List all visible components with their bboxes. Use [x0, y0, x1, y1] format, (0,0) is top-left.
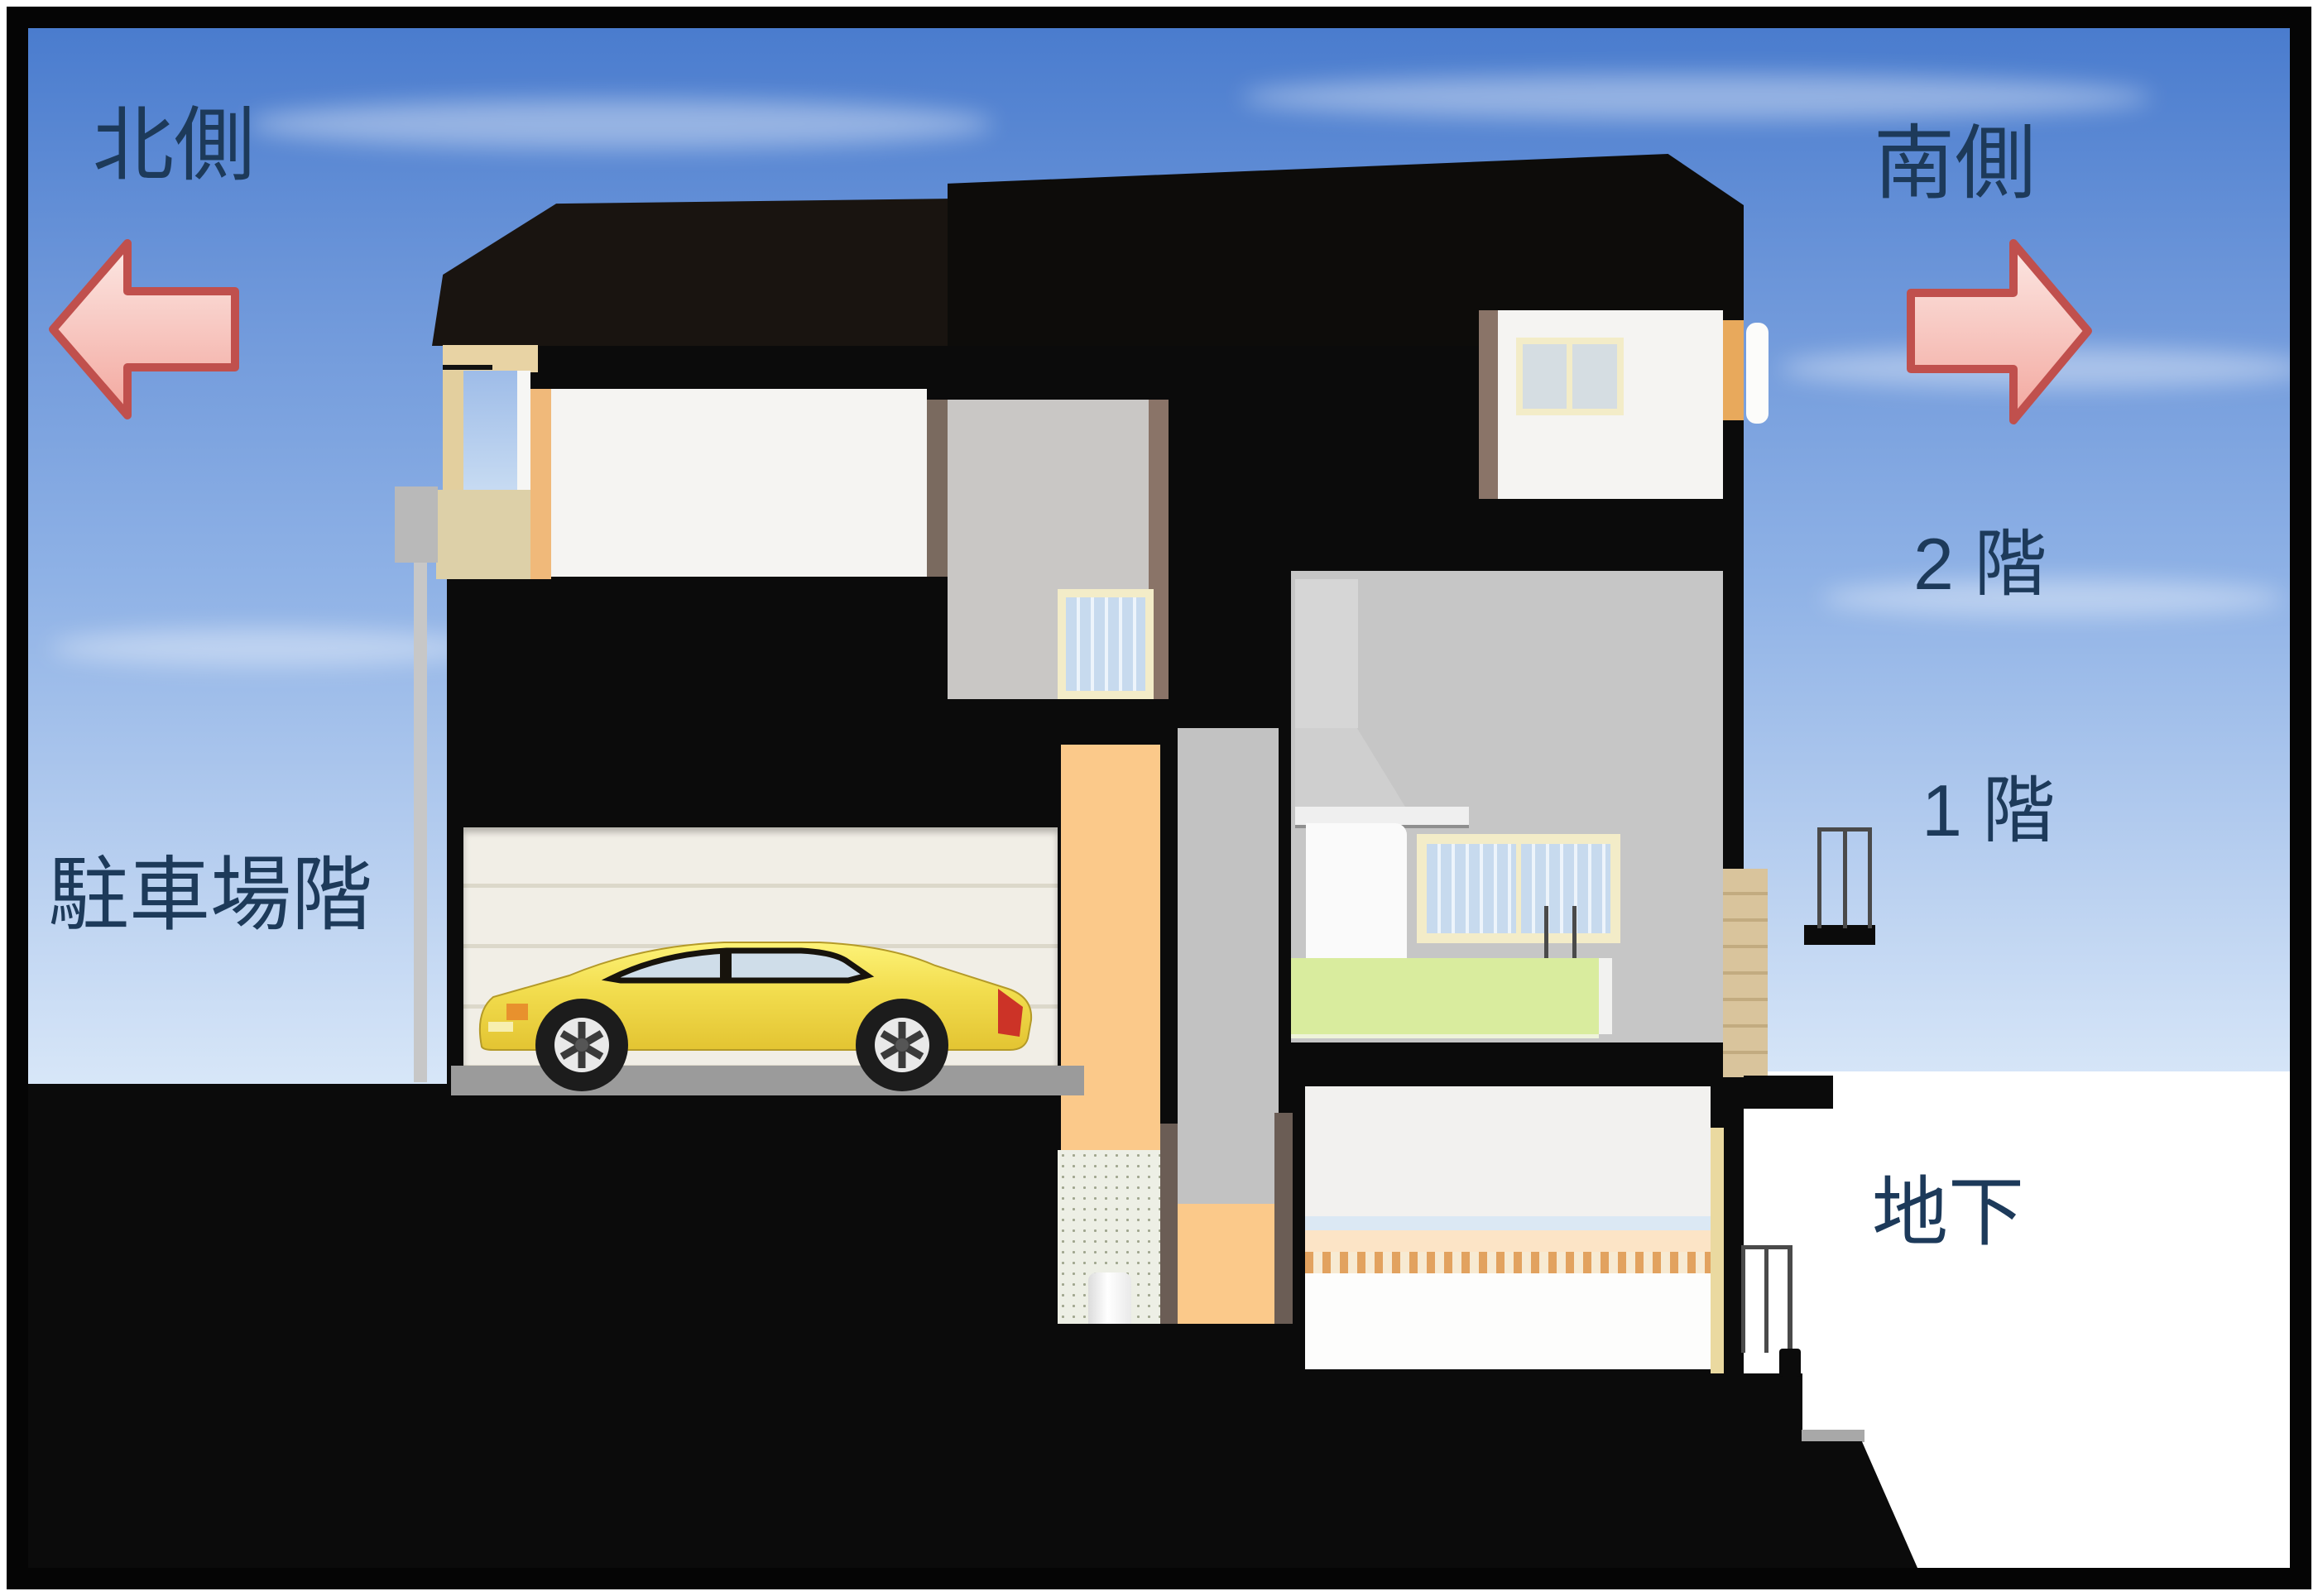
- exterior-trim-orange: [1723, 320, 1744, 420]
- veranda-railing-bar: [1843, 827, 1847, 928]
- faucet: [1544, 906, 1548, 958]
- basement-wall-band-blue: [1305, 1216, 1711, 1230]
- balcony-beam: [443, 365, 492, 370]
- label-basement: 地下: [1872, 1175, 2024, 1251]
- floor-slab-edge: [1744, 1076, 1833, 1109]
- earth-section: [1274, 1365, 1719, 1568]
- balcony-parapet: [436, 490, 530, 579]
- veranda-slab-edge: [1804, 925, 1875, 945]
- earth-step-shadow: [1802, 1430, 1864, 1442]
- basement-wall-band-peach: [1305, 1230, 1711, 1252]
- range-hood-duct: [1295, 579, 1358, 728]
- veranda-railing-bar: [1868, 827, 1872, 928]
- brick-pier: [1723, 869, 1768, 1077]
- label-floor-2: 2 階: [1913, 528, 2047, 601]
- stair-wall-brown: [1160, 1124, 1178, 1324]
- room-2f-north: [551, 389, 927, 577]
- balcony-inner-edge: [517, 371, 530, 491]
- cloud-streak: [1821, 579, 2284, 617]
- drainpipe: [414, 563, 427, 1082]
- kitchen-window: [1417, 834, 1620, 943]
- stairwell-window: [1058, 589, 1154, 699]
- label-south-side: 南側: [1874, 122, 2036, 204]
- north-arrow-icon: [48, 238, 240, 420]
- basement-railing-bar: [1764, 1245, 1768, 1353]
- stair-wall-gray: [1178, 728, 1279, 1204]
- basement-railing-bar: [1741, 1245, 1745, 1353]
- wall-stud-brown: [1479, 310, 1498, 499]
- cloud-streak: [1241, 74, 2152, 120]
- wall-stud-orange: [530, 389, 551, 579]
- label-north-side: 北側: [93, 104, 255, 185]
- faucet: [1572, 906, 1577, 958]
- south-arrow-icon: [1906, 237, 2093, 425]
- label-parking-level: 駐車場階: [48, 854, 372, 935]
- earth-section: [1717, 1373, 1802, 1568]
- meter-box: [395, 486, 438, 563]
- basement-wall-right: [1711, 1128, 1724, 1373]
- wall-stud-brown: [927, 400, 948, 577]
- earth-section-north: [28, 1084, 1058, 1568]
- slide-canvas: 北側 南側 2 階 1 階 地下 駐車場階: [0, 0, 2318, 1596]
- basement-wall-lower: [1305, 1273, 1711, 1369]
- kitchen-sink-unit: [1306, 823, 1407, 958]
- water-tank: [1088, 1272, 1131, 1324]
- counter-end-panel: [1599, 958, 1612, 1034]
- basement-wall-left: [1274, 1113, 1293, 1324]
- cloud-streak: [248, 99, 993, 149]
- kitchen-counter: [1291, 958, 1599, 1038]
- basement-wall-band-dotted: [1305, 1252, 1711, 1273]
- label-floor-1: 1 階: [1922, 774, 2055, 847]
- veranda-railing-bar: [1817, 827, 1821, 928]
- balcony-sky-gap: [463, 371, 517, 491]
- basement-railing-bar: [1788, 1245, 1792, 1353]
- window-2f-south: [1516, 338, 1624, 415]
- earth-section: [1058, 1324, 1291, 1568]
- exterior-pipe: [1746, 323, 1768, 424]
- stair-wall-orange: [1178, 1204, 1279, 1324]
- car-icon: [472, 906, 1043, 1096]
- railing-post: [1779, 1349, 1801, 1377]
- balcony-column: [443, 371, 463, 491]
